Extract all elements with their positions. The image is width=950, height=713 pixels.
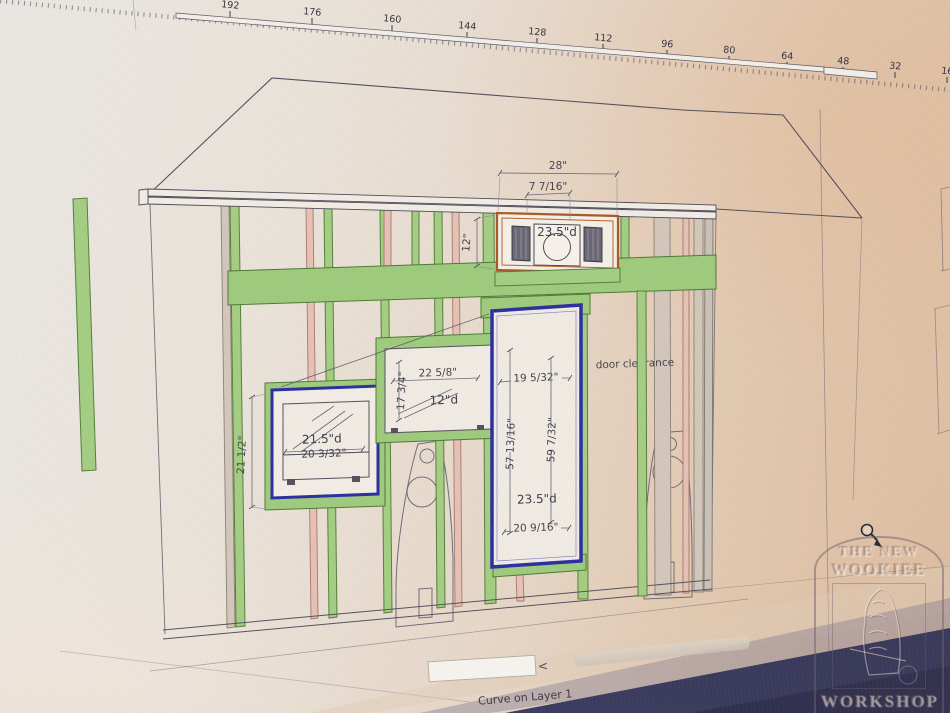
- cripple-stud[interactable]: [384, 209, 391, 271]
- ruler-label: 32: [889, 60, 902, 72]
- tv-foot: [287, 479, 295, 485]
- dim-label: 22 5/8": [418, 366, 457, 379]
- ruler-label: 160: [383, 13, 402, 26]
- cad-app-screenshot: 192 176 160 144 128 112 96 80 64 48 32 1…: [0, 0, 950, 713]
- loose-stud[interactable]: [73, 198, 96, 471]
- ruler-label: 176: [303, 6, 322, 19]
- ruler-label: 112: [594, 32, 613, 45]
- ruler-label: 48: [837, 55, 850, 67]
- ceiling-strip[interactable]: [176, 13, 824, 72]
- ruler-label: 16: [941, 65, 950, 77]
- dim-label: 17 3/4": [395, 371, 409, 410]
- dim-label: 21.5"d: [302, 431, 342, 446]
- cabinet-foot: [391, 428, 398, 433]
- ruler-label: 144: [458, 20, 477, 33]
- ruler-label: 80: [723, 44, 736, 56]
- dim-label: 20 9/16": [513, 521, 559, 535]
- watermark-line3: WORKSHOP: [820, 691, 938, 711]
- tv-foot: [352, 476, 360, 482]
- offscreen-shapes: [934, 187, 950, 434]
- dim-label: 23.5"d: [517, 491, 557, 506]
- watermark-line1: THE NEW: [839, 545, 920, 561]
- dim-label: 21 1/2": [235, 435, 249, 474]
- cripple-stud[interactable]: [621, 214, 629, 261]
- ruler-minor-ticks: [0, 1, 950, 90]
- top-ruler: 192 176 160 144 128 112 96 80 64 48 32 1…: [0, 0, 950, 90]
- wookiee-figure: [832, 583, 926, 689]
- dim-label: 7 7/16": [529, 181, 567, 193]
- dim-label: 20 3/32": [301, 447, 347, 461]
- ceiling-strip-end[interactable]: [824, 67, 877, 79]
- dim-label: 19 5/32": [513, 371, 559, 385]
- watermark: THE NEW WOOKIEE WORKSHOP: [814, 536, 944, 713]
- top-speaker-box[interactable]: [495, 213, 620, 286]
- center-niche[interactable]: [376, 333, 502, 443]
- dim-label: 57 13/16": [504, 418, 518, 470]
- wall-left-edge: [150, 204, 165, 634]
- watermark-line2: WOOKIEE: [832, 562, 927, 580]
- ruler-label: 96: [661, 38, 674, 50]
- ruler-label: 192: [221, 0, 240, 12]
- dim-label: 28": [549, 160, 567, 172]
- cripple-stud[interactable]: [412, 210, 419, 270]
- ruler-label: 128: [528, 26, 547, 39]
- dim-label: 23.5"d: [537, 225, 577, 239]
- scroll-left-button[interactable]: <: [538, 660, 549, 673]
- tall-niche[interactable]: [481, 294, 590, 577]
- drawing-canvas[interactable]: 192 176 160 144 128 112 96 80 64 48 32 1…: [0, 0, 950, 713]
- dim-label: 12": [460, 233, 474, 252]
- dim-label: 12"d: [429, 393, 458, 408]
- cabinet-foot: [477, 425, 484, 430]
- ruler-label: 64: [781, 50, 794, 62]
- dim-label: 59 7/32": [545, 417, 559, 463]
- stud[interactable]: [637, 291, 647, 596]
- page-edge-line: [133, 0, 136, 30]
